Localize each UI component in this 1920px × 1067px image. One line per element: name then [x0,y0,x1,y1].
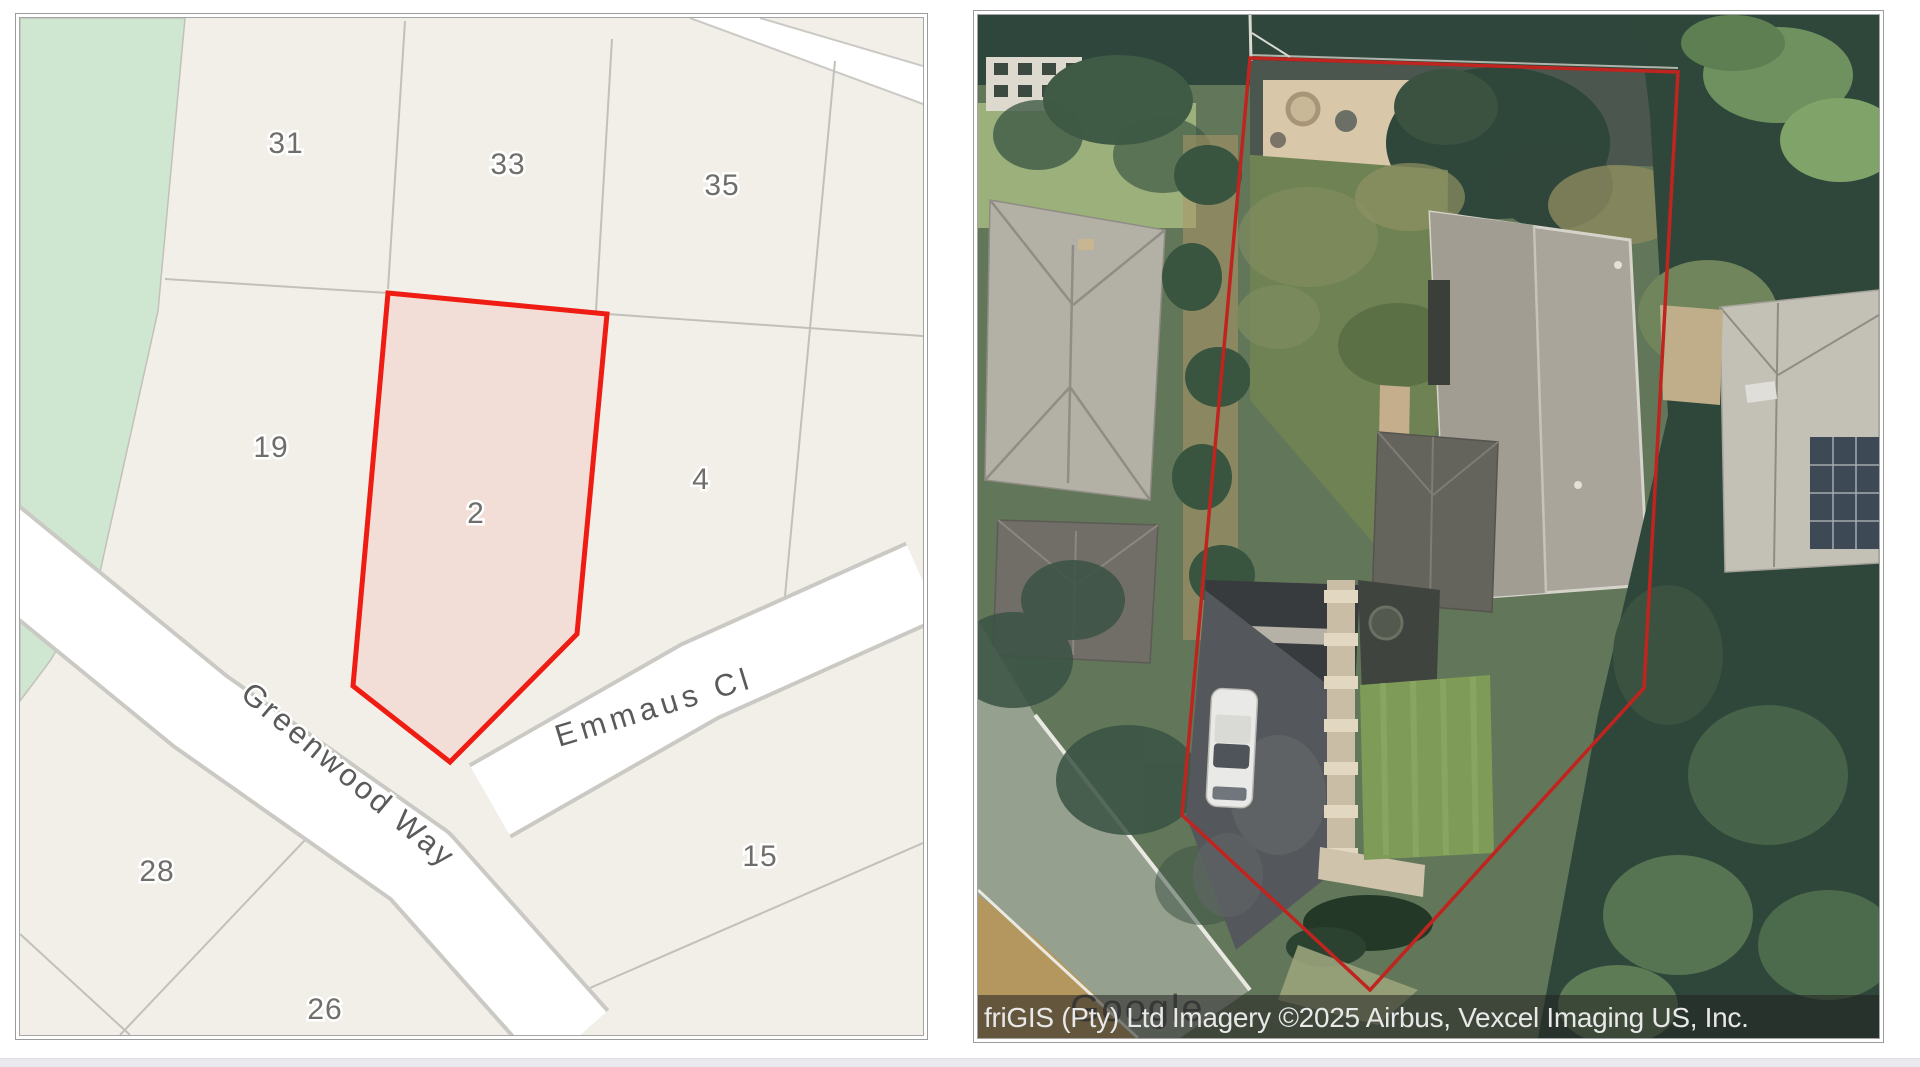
parcel-label-28: 28 [139,855,174,888]
page-bottom-strip [0,1058,1920,1067]
parcel-label-35: 35 [704,169,739,202]
satellite-map-panel[interactable]: Google friGIS (Pty) Ltd Imagery ©2025 Ai… [973,10,1884,1043]
parcel-label-19: 19 [253,431,288,464]
parcel-map-svg: 31 33 35 19 2 4 28 26 15 Greenwood Way E… [20,18,923,1035]
screenshot-stage: 31 33 35 19 2 4 28 26 15 Greenwood Way E… [0,0,1920,1067]
satellite-map-canvas[interactable]: Google friGIS (Pty) Ltd Imagery ©2025 Ai… [977,14,1880,1039]
parcel-map-panel[interactable]: 31 33 35 19 2 4 28 26 15 Greenwood Way E… [15,13,928,1040]
parcel-label-26: 26 [307,993,342,1026]
parked-car [1206,688,1258,808]
parcel-label-33: 33 [490,148,525,181]
parcel-map-canvas[interactable]: 31 33 35 19 2 4 28 26 15 Greenwood Way E… [19,17,924,1036]
attribution-text: friGIS (Pty) Ltd Imagery ©2025 Airbus, V… [984,1002,1749,1033]
parcel-label-15: 15 [742,840,777,873]
parcel-label-4: 4 [692,463,710,496]
parcel-label-2: 2 [467,497,485,530]
satellite-svg: Google friGIS (Pty) Ltd Imagery ©2025 Ai… [978,15,1879,1038]
side-lawn [1360,675,1494,860]
parcel-label-31: 31 [268,127,303,160]
